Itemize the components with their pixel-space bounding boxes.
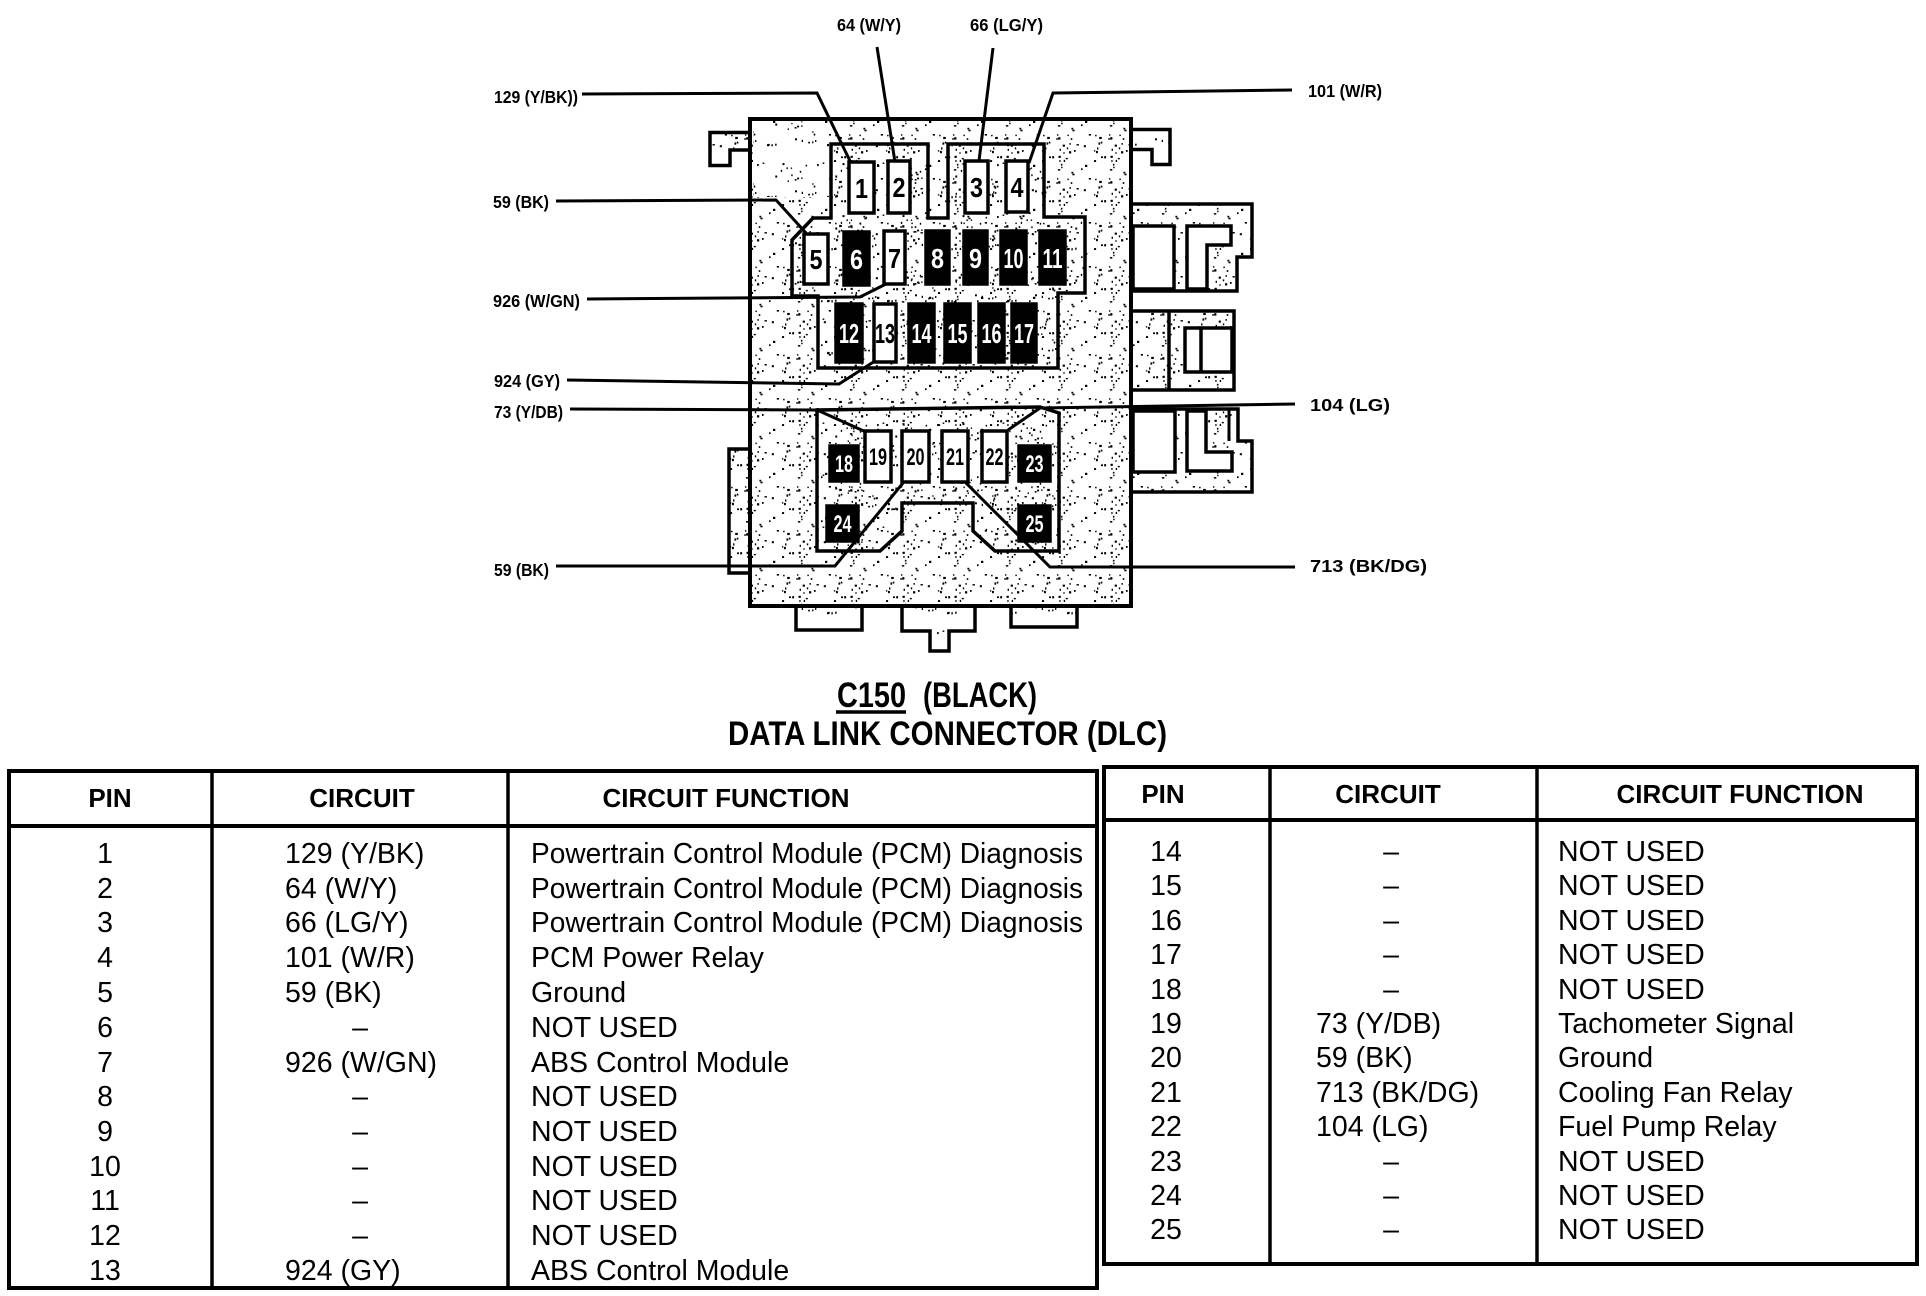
svg-text:9: 9 bbox=[969, 243, 982, 274]
svg-text:ABS Control Module: ABS Control Module bbox=[531, 1047, 789, 1079]
svg-text:59 (BK): 59 (BK) bbox=[493, 192, 549, 212]
svg-text:101 (W/R): 101 (W/R) bbox=[285, 942, 415, 974]
svg-text:NOT USED: NOT USED bbox=[1558, 870, 1705, 902]
svg-text:25: 25 bbox=[1150, 1214, 1182, 1246]
svg-text:–: – bbox=[1383, 974, 1399, 1006]
svg-text:NOT USED: NOT USED bbox=[1558, 974, 1705, 1006]
svg-text:8: 8 bbox=[931, 243, 944, 274]
svg-text:104 (LG): 104 (LG) bbox=[1310, 395, 1390, 415]
svg-text:–: – bbox=[1383, 836, 1399, 868]
svg-text:2: 2 bbox=[893, 172, 906, 203]
svg-text:59 (BK): 59 (BK) bbox=[494, 560, 549, 580]
svg-text:NOT USED: NOT USED bbox=[531, 1151, 678, 1183]
svg-text:NOT USED: NOT USED bbox=[531, 1220, 678, 1252]
svg-text:DATA LINK CONNECTOR (DLC): DATA LINK CONNECTOR (DLC) bbox=[728, 715, 1167, 753]
svg-text:NOT USED: NOT USED bbox=[531, 1116, 678, 1148]
svg-text:NOT USED: NOT USED bbox=[1558, 836, 1705, 868]
svg-text:18: 18 bbox=[1150, 974, 1182, 1006]
svg-text:17: 17 bbox=[1014, 318, 1034, 349]
svg-text:21: 21 bbox=[946, 444, 964, 471]
svg-text:–: – bbox=[1383, 1180, 1399, 1212]
svg-text:PCM Power Relay: PCM Power Relay bbox=[531, 942, 765, 974]
svg-text:14: 14 bbox=[1150, 836, 1182, 868]
svg-text:924 (GY): 924 (GY) bbox=[285, 1255, 401, 1287]
svg-text:NOT USED: NOT USED bbox=[531, 1012, 678, 1044]
svg-text:PIN: PIN bbox=[1141, 779, 1184, 809]
svg-text:20: 20 bbox=[1150, 1042, 1182, 1074]
svg-text:11: 11 bbox=[1043, 243, 1063, 274]
svg-text:NOT USED: NOT USED bbox=[1558, 1214, 1705, 1246]
svg-text:73 (Y/DB): 73 (Y/DB) bbox=[494, 402, 563, 422]
svg-text:16: 16 bbox=[1150, 905, 1182, 937]
svg-text:NOT USED: NOT USED bbox=[1558, 905, 1705, 937]
svg-text:15: 15 bbox=[1150, 870, 1182, 902]
svg-text:–: – bbox=[1383, 1214, 1399, 1246]
svg-text:16: 16 bbox=[982, 318, 1002, 349]
svg-text:–: – bbox=[1383, 939, 1399, 971]
svg-text:21: 21 bbox=[1150, 1077, 1182, 1109]
svg-text:5: 5 bbox=[810, 244, 823, 275]
svg-text:1: 1 bbox=[855, 173, 868, 204]
svg-text:NOT USED: NOT USED bbox=[531, 1185, 678, 1217]
svg-text:PIN: PIN bbox=[88, 783, 131, 813]
svg-text:3: 3 bbox=[97, 907, 113, 939]
svg-text:NOT USED: NOT USED bbox=[1558, 1180, 1705, 1212]
svg-text:59 (BK): 59 (BK) bbox=[1316, 1042, 1413, 1074]
svg-text:14: 14 bbox=[912, 318, 932, 349]
svg-text:2: 2 bbox=[97, 873, 113, 905]
svg-text:–: – bbox=[352, 1116, 368, 1148]
svg-text:NOT USED: NOT USED bbox=[531, 1081, 678, 1113]
svg-text:6: 6 bbox=[850, 244, 863, 275]
svg-text:12: 12 bbox=[839, 318, 859, 349]
svg-text:C150: C150 bbox=[837, 676, 906, 715]
svg-text:19: 19 bbox=[1150, 1008, 1182, 1040]
svg-text:–: – bbox=[352, 1151, 368, 1183]
svg-text:13: 13 bbox=[89, 1255, 121, 1287]
svg-text:–: – bbox=[352, 1081, 368, 1113]
svg-text:Powertrain Control Module (PCM: Powertrain Control Module (PCM) Diagnosi… bbox=[531, 907, 1083, 939]
svg-text:66 (LG/Y): 66 (LG/Y) bbox=[970, 15, 1043, 35]
svg-text:Powertrain Control Module (PCM: Powertrain Control Module (PCM) Diagnosi… bbox=[531, 838, 1083, 870]
svg-text:Ground: Ground bbox=[531, 977, 626, 1009]
svg-text:24: 24 bbox=[834, 511, 852, 538]
svg-text:713 (BK/DG): 713 (BK/DG) bbox=[1316, 1077, 1479, 1109]
svg-text:CIRCUIT: CIRCUIT bbox=[309, 783, 415, 813]
svg-text:Powertrain Control Module (PCM: Powertrain Control Module (PCM) Diagnosi… bbox=[531, 873, 1083, 905]
svg-text:64 (W/Y): 64 (W/Y) bbox=[837, 15, 901, 35]
svg-text:73 (Y/DB): 73 (Y/DB) bbox=[1316, 1008, 1441, 1040]
svg-text:129 (Y/BK)): 129 (Y/BK)) bbox=[494, 87, 578, 107]
svg-text:23: 23 bbox=[1026, 451, 1044, 478]
svg-text:66 (LG/Y): 66 (LG/Y) bbox=[285, 907, 409, 939]
svg-text:11: 11 bbox=[90, 1185, 120, 1217]
svg-text:59 (BK): 59 (BK) bbox=[285, 977, 382, 1009]
svg-text:24: 24 bbox=[1150, 1180, 1182, 1212]
svg-text:6: 6 bbox=[97, 1012, 113, 1044]
svg-text:129 (Y/BK): 129 (Y/BK) bbox=[285, 838, 424, 870]
svg-text:–: – bbox=[1383, 1146, 1399, 1178]
svg-text:20: 20 bbox=[907, 444, 925, 471]
svg-text:924 (GY): 924 (GY) bbox=[494, 371, 560, 391]
svg-text:19: 19 bbox=[869, 444, 887, 471]
svg-text:NOT USED: NOT USED bbox=[1558, 939, 1705, 971]
svg-text:926 (W/GN): 926 (W/GN) bbox=[285, 1047, 437, 1079]
svg-text:–: – bbox=[1383, 905, 1399, 937]
svg-text:–: – bbox=[352, 1012, 368, 1044]
svg-text:Tachometer Signal: Tachometer Signal bbox=[1558, 1008, 1794, 1040]
svg-text:CIRCUIT FUNCTION: CIRCUIT FUNCTION bbox=[603, 783, 850, 813]
svg-text:3: 3 bbox=[970, 172, 983, 203]
svg-text:101 (W/R): 101 (W/R) bbox=[1308, 81, 1382, 101]
svg-text:926 (W/GN): 926 (W/GN) bbox=[493, 291, 580, 311]
svg-text:17: 17 bbox=[1150, 939, 1182, 971]
svg-text:10: 10 bbox=[1004, 243, 1024, 274]
svg-text:CIRCUIT FUNCTION: CIRCUIT FUNCTION bbox=[1617, 779, 1864, 809]
svg-text:13: 13 bbox=[875, 318, 895, 349]
svg-text:22: 22 bbox=[1150, 1111, 1182, 1143]
svg-text:18: 18 bbox=[835, 451, 853, 478]
svg-text:15: 15 bbox=[948, 318, 968, 349]
svg-text:64 (W/Y): 64 (W/Y) bbox=[285, 873, 397, 905]
svg-text:4: 4 bbox=[97, 942, 113, 974]
svg-text:NOT USED: NOT USED bbox=[1558, 1146, 1705, 1178]
svg-text:12: 12 bbox=[89, 1220, 121, 1252]
svg-text:Cooling Fan Relay: Cooling Fan Relay bbox=[1558, 1077, 1793, 1109]
svg-text:25: 25 bbox=[1026, 511, 1044, 538]
svg-text:CIRCUIT: CIRCUIT bbox=[1335, 779, 1441, 809]
svg-text:8: 8 bbox=[97, 1081, 113, 1113]
svg-text:Ground: Ground bbox=[1558, 1042, 1653, 1074]
svg-text:713 (BK/DG): 713 (BK/DG) bbox=[1310, 556, 1427, 576]
svg-text:–: – bbox=[352, 1185, 368, 1217]
svg-text:7: 7 bbox=[888, 243, 901, 274]
svg-text:23: 23 bbox=[1150, 1146, 1182, 1178]
svg-text:4: 4 bbox=[1011, 172, 1024, 203]
svg-text:7: 7 bbox=[97, 1047, 113, 1079]
svg-text:–: – bbox=[1383, 870, 1399, 902]
svg-text:1: 1 bbox=[97, 838, 113, 870]
svg-text:22: 22 bbox=[986, 444, 1004, 471]
svg-text:104 (LG): 104 (LG) bbox=[1316, 1111, 1428, 1143]
svg-text:9: 9 bbox=[97, 1116, 113, 1148]
svg-text:5: 5 bbox=[97, 977, 113, 1009]
svg-text:(BLACK): (BLACK) bbox=[923, 676, 1037, 715]
svg-text:ABS Control Module: ABS Control Module bbox=[531, 1255, 789, 1287]
svg-text:–: – bbox=[352, 1220, 368, 1252]
svg-text:10: 10 bbox=[89, 1151, 121, 1183]
svg-text:Fuel Pump Relay: Fuel Pump Relay bbox=[1558, 1111, 1777, 1143]
